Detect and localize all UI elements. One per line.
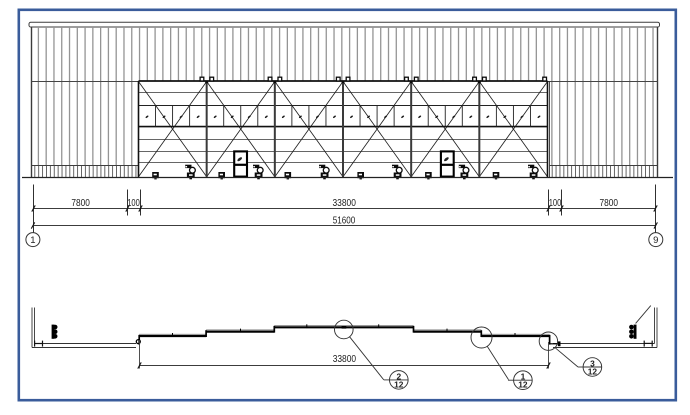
svg-text:12: 12 (588, 366, 598, 376)
svg-text:9: 9 (653, 235, 658, 246)
svg-text:100: 100 (127, 198, 140, 209)
svg-text:7800: 7800 (71, 198, 90, 209)
svg-text:12: 12 (518, 380, 528, 390)
svg-text:12: 12 (394, 379, 404, 389)
svg-text:33800: 33800 (333, 354, 357, 365)
svg-text:1: 1 (30, 235, 35, 246)
svg-text:7800: 7800 (600, 198, 619, 209)
svg-text:51600: 51600 (333, 216, 356, 227)
svg-text:33800: 33800 (333, 198, 357, 209)
svg-text:100: 100 (549, 198, 562, 209)
